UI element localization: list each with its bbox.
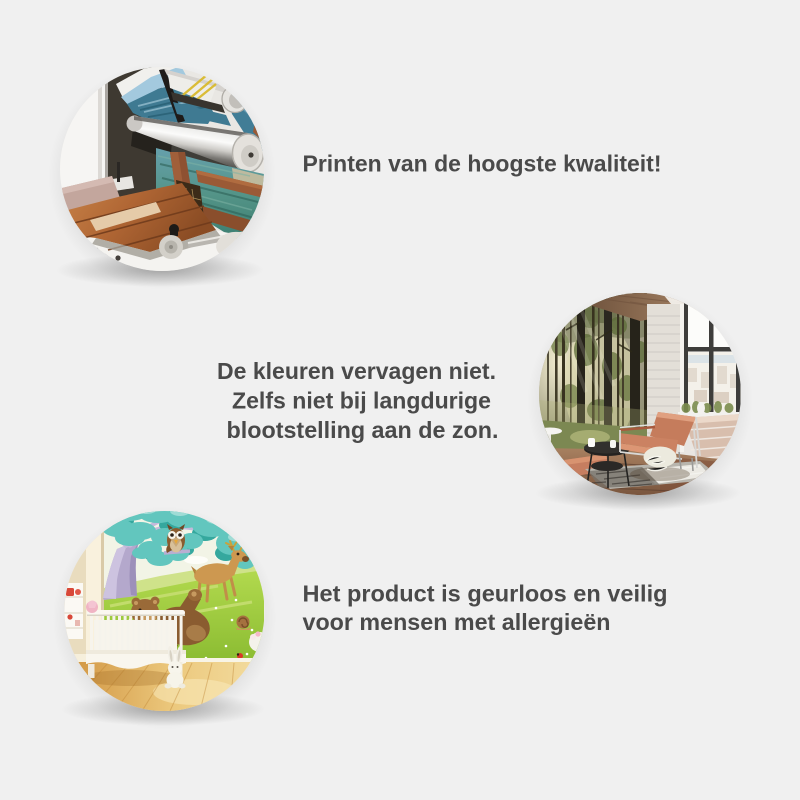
svg-text:De kleuren vervagen niet.: De kleuren vervagen niet.	[217, 358, 496, 384]
svg-text:Printen van de hoogste kwalite: Printen van de hoogste kwaliteit!	[303, 150, 662, 176]
svg-text:voor mensen met allergieën: voor mensen met allergieën	[303, 609, 611, 635]
svg-text:Zelfs niet bij langdurige: Zelfs niet bij langdurige	[232, 388, 491, 414]
svg-text:Het product is geurloos en vei: Het product is geurloos en veilig	[303, 581, 668, 607]
svg-text:blootstelling aan de zon.: blootstelling aan de zon.	[227, 417, 499, 443]
